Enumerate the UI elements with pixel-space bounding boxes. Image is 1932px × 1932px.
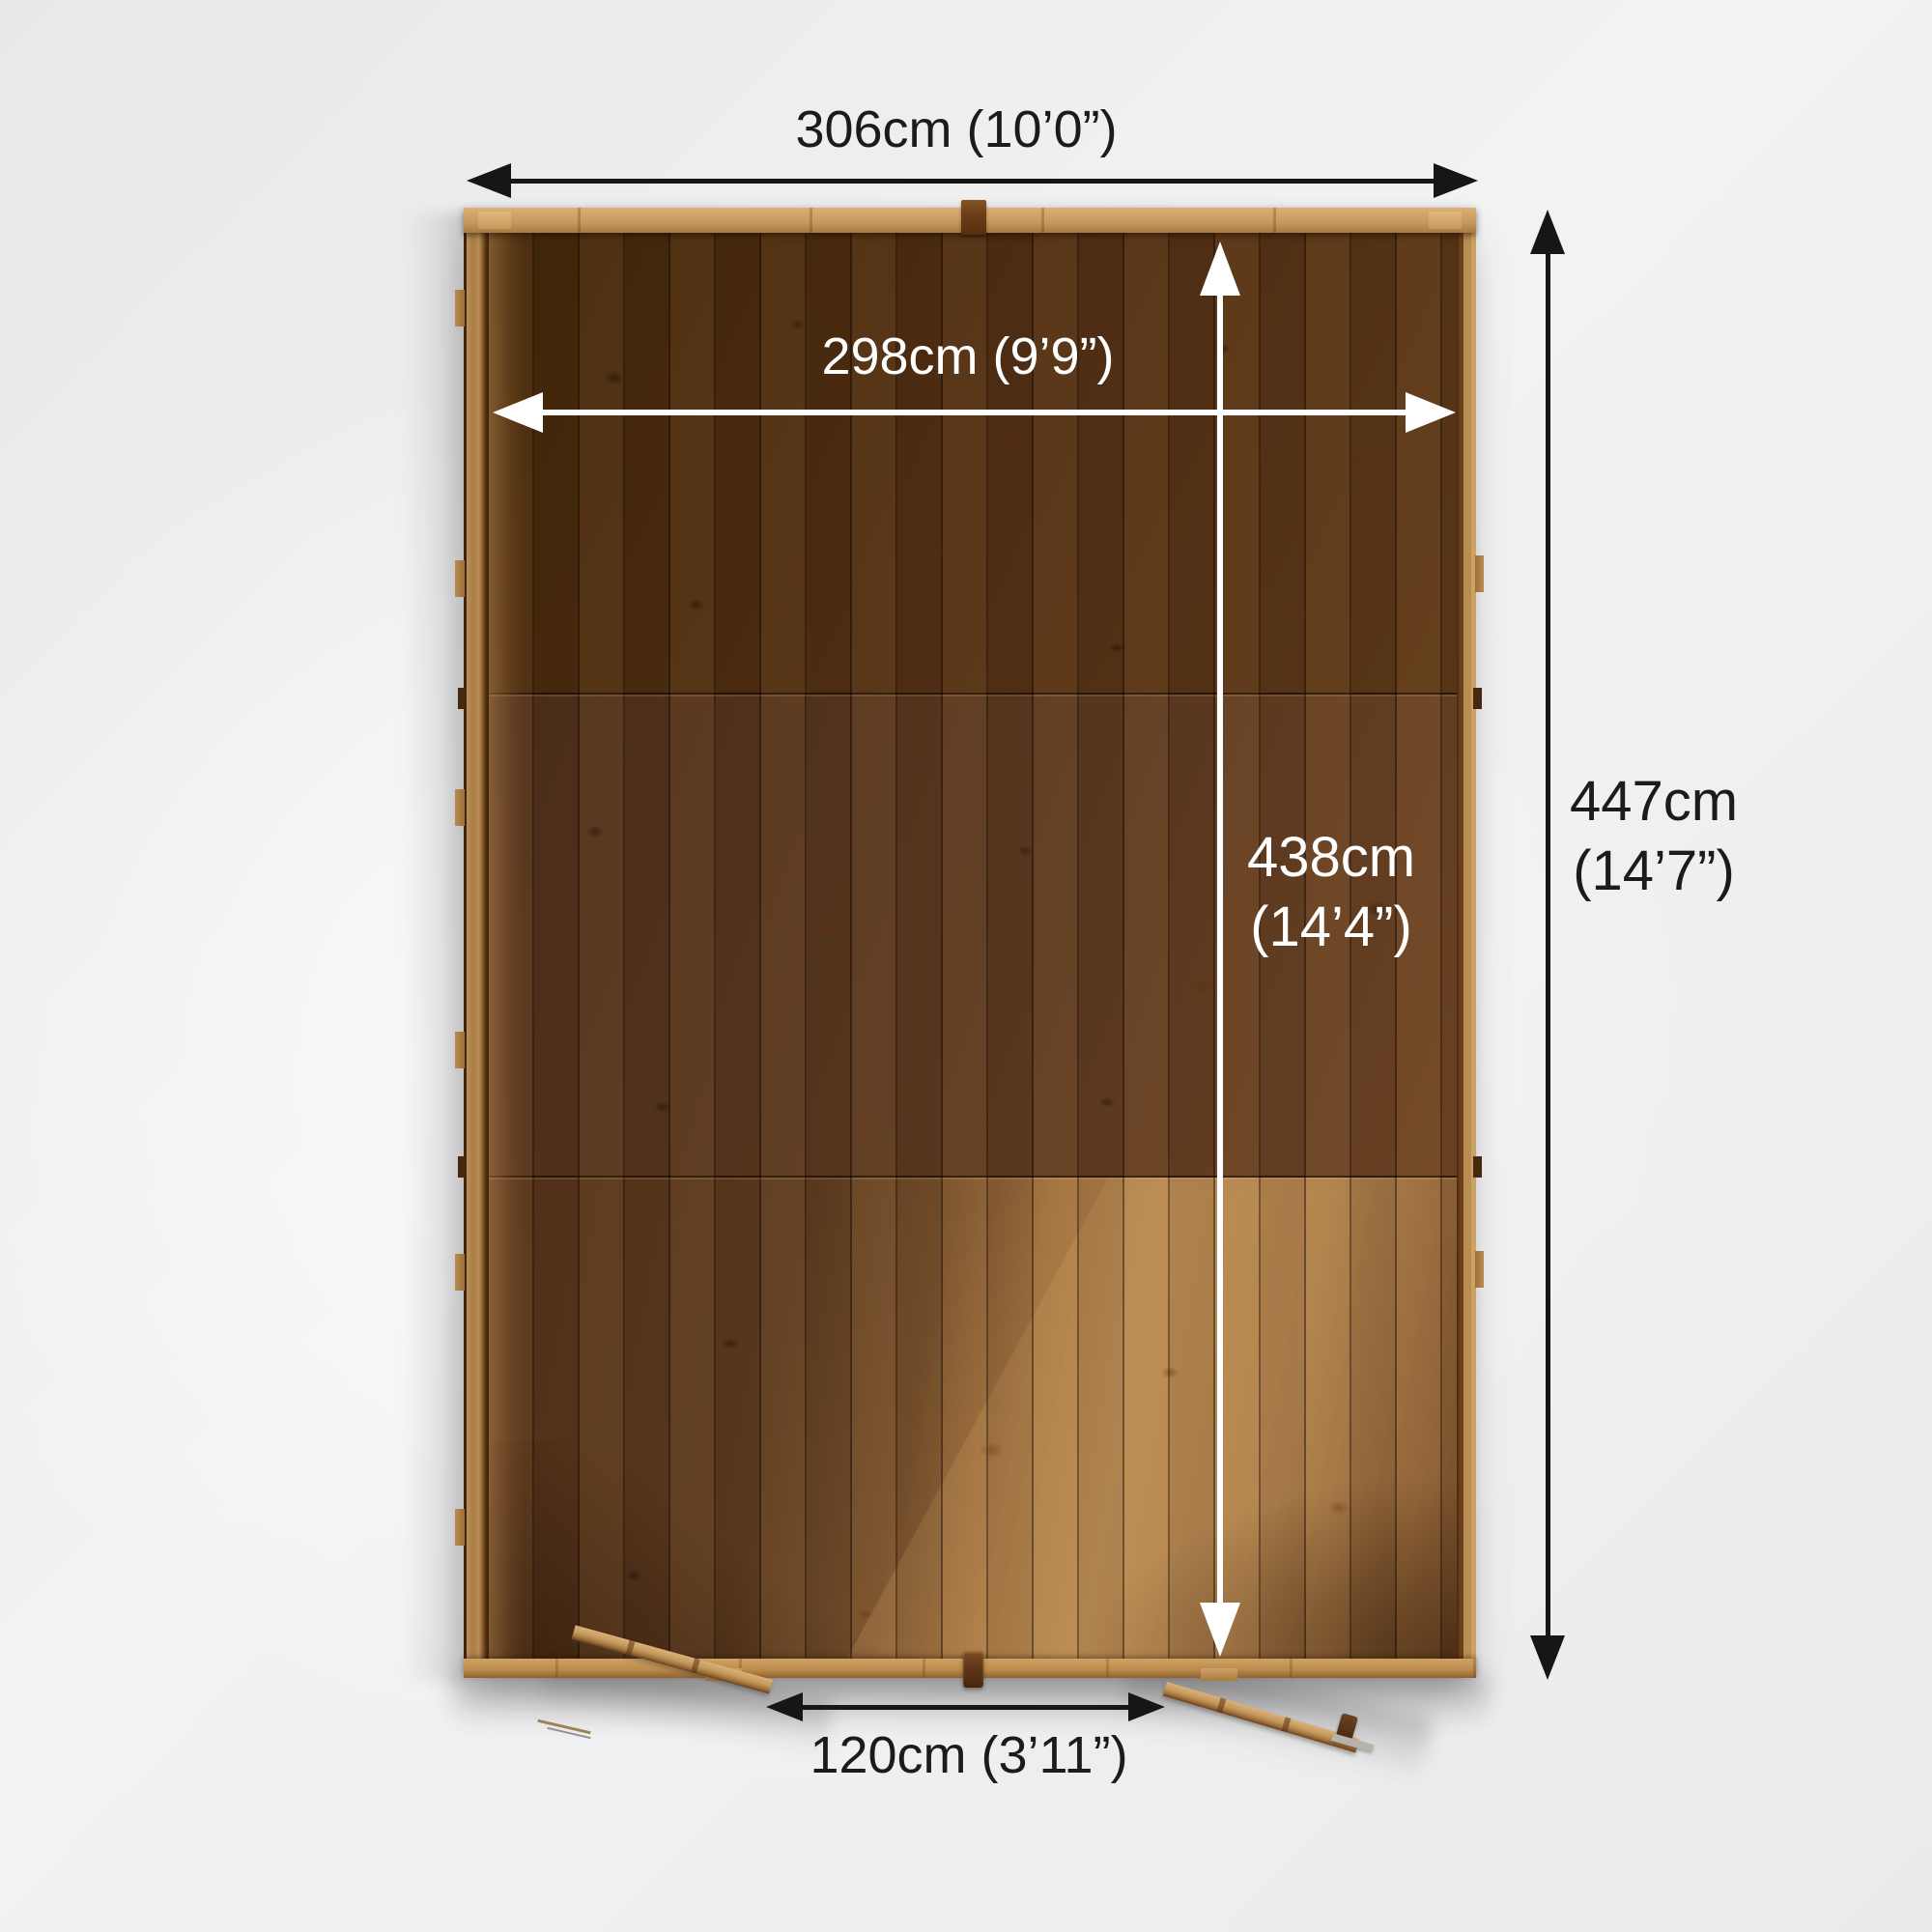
seam-joint-right-1: [1473, 688, 1482, 709]
dimension-label-outer-width: 306cm (10’0”): [618, 99, 1294, 159]
seam-joint-right-2: [1473, 1156, 1482, 1178]
dimension-label-door-width: 120cm (3’11”): [631, 1725, 1307, 1785]
outer-depth-cm: 447cm: [1461, 767, 1847, 837]
dimension-arrow-outer-depth: [1528, 210, 1567, 1680]
frame-tab-left-6: [455, 1509, 465, 1546]
dimension-arrow-door-width: [766, 1692, 1165, 1721]
corner-joint-top-right: [1429, 212, 1462, 229]
seam-joint-left-1: [458, 688, 467, 709]
frame-tab-left-1: [455, 290, 465, 327]
frame-tab-left-4: [455, 1032, 465, 1068]
frame-tab-left-2: [455, 560, 465, 597]
corner-joint-top-left: [478, 212, 511, 229]
dimension-arrow-outer-width: [467, 161, 1478, 200]
dimension-label-inner-width: 298cm (9’9”): [630, 327, 1306, 386]
dimension-label-outer-depth: 447cm (14’7”): [1461, 767, 1847, 906]
outer-depth-ft: (14’7”): [1461, 837, 1847, 906]
shed-dimension-diagram: 306cm (10’0”) 298cm (9’9”) 438cm (14’4”)…: [0, 0, 1932, 1932]
frame-tab-left-5: [455, 1254, 465, 1291]
frame-tab-right-1: [1475, 555, 1484, 592]
frame-tab-left-3: [455, 789, 465, 826]
left-wall-frame: [464, 208, 489, 1678]
wall-shadow-left: [404, 213, 462, 1681]
door-handle: [963, 1651, 983, 1688]
dimension-arrow-inner-width: [493, 392, 1456, 433]
door-hinge-block-right: [1201, 1668, 1237, 1681]
seam-joint-left-2: [458, 1156, 467, 1178]
roof-apex-joint: [961, 200, 986, 235]
frame-tab-right-2: [1475, 1251, 1484, 1288]
